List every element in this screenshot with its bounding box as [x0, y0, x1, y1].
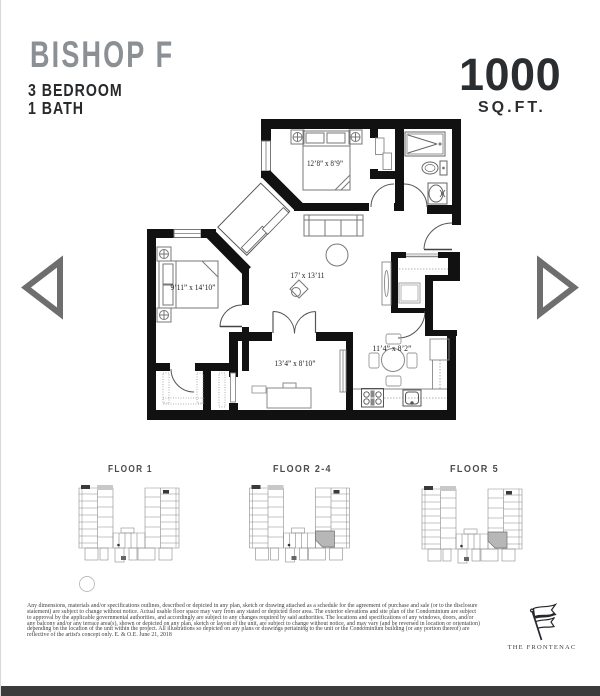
svg-text:13’4” x 8’10”: 13’4” x 8’10” [275, 359, 316, 368]
svg-text:12’8” x 8’9”: 12’8” x 8’9” [307, 159, 343, 168]
svg-text:9’11” x 14’10”: 9’11” x 14’10” [171, 283, 216, 292]
svg-text:11’4” x 8’2”: 11’4” x 8’2” [373, 344, 412, 353]
svg-text:17’ x 13’11: 17’ x 13’11 [291, 271, 325, 280]
